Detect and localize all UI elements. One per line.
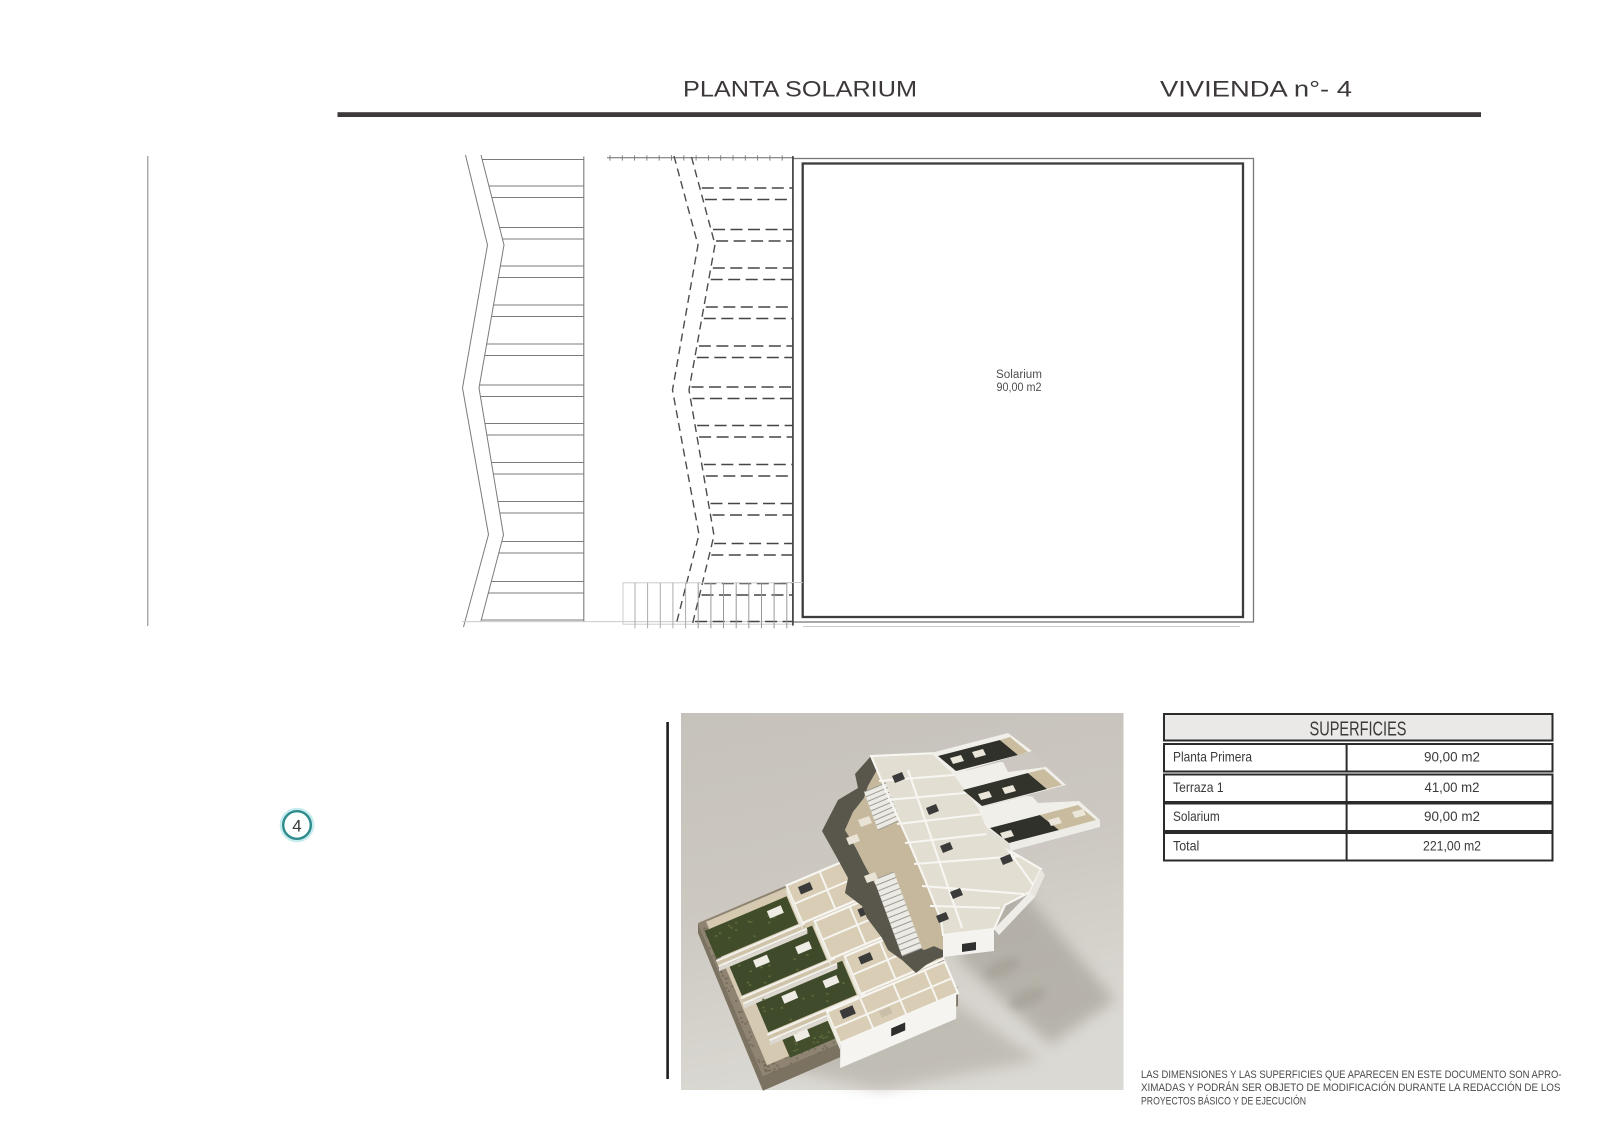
svg-text:90,00 m2: 90,00 m2 bbox=[1424, 809, 1480, 824]
svg-text:41,00 m2: 41,00 m2 bbox=[1425, 780, 1480, 795]
svg-text:Terraza 1: Terraza 1 bbox=[1173, 780, 1224, 795]
svg-text:XIMADAS Y PODRÁN SER OBJETO DE: XIMADAS Y PODRÁN SER OBJETO DE MODIFICAC… bbox=[1141, 1081, 1561, 1094]
svg-text:LAS DIMENSIONES Y LAS SUPERFIC: LAS DIMENSIONES Y LAS SUPERFICIES QUE AP… bbox=[1141, 1069, 1562, 1081]
svg-text:VIVIENDA n°- 4: VIVIENDA n°- 4 bbox=[1160, 77, 1352, 102]
svg-text:4: 4 bbox=[292, 817, 301, 836]
svg-text:Total: Total bbox=[1173, 839, 1199, 854]
svg-text:Planta Primera: Planta Primera bbox=[1173, 750, 1252, 765]
svg-text:SUPERFICIES: SUPERFICIES bbox=[1310, 719, 1407, 741]
svg-text:PLANTA SOLARIUM: PLANTA SOLARIUM bbox=[683, 77, 917, 102]
svg-text:221,00 m2: 221,00 m2 bbox=[1423, 839, 1481, 854]
svg-text:Solarium: Solarium bbox=[1173, 809, 1220, 824]
svg-text:90,00 m2: 90,00 m2 bbox=[997, 382, 1042, 394]
svg-text:PROYECTOS BÁSICO Y DE EJECUCIÓ: PROYECTOS BÁSICO Y DE EJECUCIÓN bbox=[1141, 1094, 1306, 1107]
svg-text:Solarium: Solarium bbox=[996, 369, 1042, 381]
svg-text:90,00 m2: 90,00 m2 bbox=[1424, 750, 1480, 765]
